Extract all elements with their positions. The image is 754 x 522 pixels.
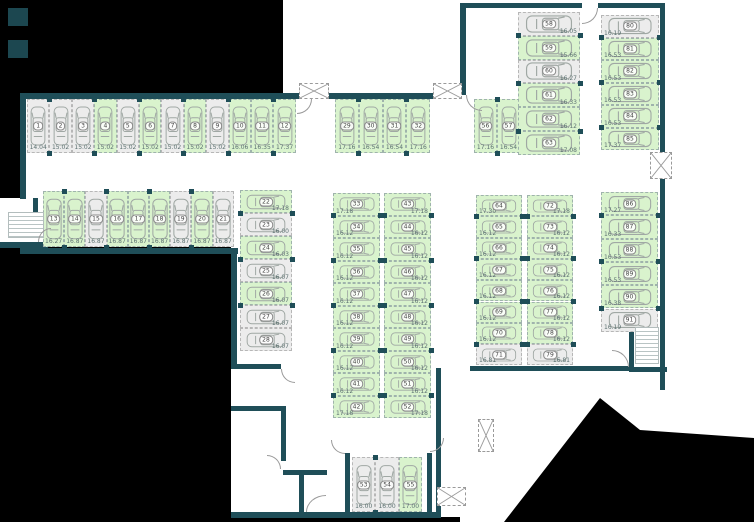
stall-78[interactable]: 7816.12	[527, 323, 573, 344]
stall-dimension-label: 16.19	[604, 324, 621, 331]
column-marker	[599, 80, 604, 85]
stall-25[interactable]: 2516.07	[240, 259, 292, 282]
column-marker	[495, 151, 500, 156]
stall-83[interactable]: 8316.53	[601, 83, 659, 106]
stall-number-badge: 6	[145, 122, 155, 131]
stall-number-badge: 83	[623, 89, 637, 98]
stall-dimension-label: 17.37	[274, 144, 294, 151]
stall-dimension-label: 16.12	[411, 253, 428, 260]
stall-dimension-label: 16.12	[336, 253, 353, 260]
column-marker	[137, 97, 142, 102]
wall	[231, 364, 281, 369]
stall-number-badge: 65	[492, 222, 506, 231]
stall-dimension-label: 17.08	[560, 147, 577, 154]
stall-number-badge: 69	[492, 308, 506, 317]
stall-dimension-label: 16.54	[498, 144, 519, 151]
column-marker	[474, 214, 479, 219]
column-marker	[331, 348, 336, 353]
stall-31[interactable]: 3116.54	[383, 99, 407, 153]
column-marker	[404, 97, 409, 102]
exterior-block	[8, 40, 28, 58]
col-stalls-33-42: 3317.183416.123516.123616.123716.123816.…	[333, 193, 380, 418]
stall-4[interactable]: 415.02	[94, 99, 116, 153]
stall-dimension-label: 16.19	[604, 30, 621, 37]
stall-number-badge: 19	[174, 215, 188, 224]
stall-2[interactable]: 215.02	[49, 99, 71, 153]
stall-number-badge: 48	[401, 312, 415, 321]
stall-24[interactable]: 2416.03	[240, 236, 292, 259]
stall-number-badge: 16	[110, 215, 124, 224]
stall-dimension-label: 17.16	[407, 144, 429, 151]
stall-number-badge: 74	[543, 244, 557, 253]
stall-58[interactable]: 5816.05	[518, 12, 580, 36]
stall-number-badge: 3	[78, 122, 88, 131]
stall-54[interactable]: 5416.00	[375, 457, 398, 512]
stall-dimension-label: 16.53	[604, 52, 621, 59]
stall-number-badge: 26	[259, 289, 273, 298]
stall-73[interactable]: 7316.12	[527, 216, 573, 237]
stall-number-badge: 7	[168, 122, 178, 131]
stall-dimension-label: 16.03	[272, 251, 289, 258]
stall-dimension-label: 16.12	[411, 320, 428, 327]
wall	[460, 3, 582, 8]
stall-dimension-label: 15.02	[185, 144, 205, 151]
stall-number-badge: 5	[123, 122, 133, 131]
wall	[629, 367, 667, 372]
stall-number-badge: 91	[623, 316, 637, 325]
stall-32[interactable]: 3217.16	[406, 99, 430, 153]
stall-dimension-label: 16.07	[272, 297, 289, 304]
stall-number-badge: 44	[401, 222, 415, 231]
stall-67[interactable]: 6716.12	[476, 259, 522, 280]
column-marker	[238, 211, 243, 216]
wall	[231, 406, 286, 411]
stall-number-badge: 86	[623, 199, 637, 208]
stall-number-badge: 63	[542, 138, 556, 147]
stall-number-badge: 40	[350, 357, 364, 366]
column-marker	[226, 97, 231, 102]
stall-dimension-label: 16.12	[411, 365, 428, 372]
stall-number-badge: 71	[492, 350, 506, 359]
stall-dimension-label: 16.53	[604, 97, 621, 104]
stall-number-badge: 17	[132, 215, 146, 224]
column-marker	[656, 259, 661, 264]
column-marker	[137, 151, 142, 156]
stall-dimension-label: 16.12	[336, 365, 353, 372]
stall-60[interactable]: 6016.27	[518, 60, 580, 84]
column-marker	[578, 33, 583, 38]
stall-number-badge: 29	[340, 122, 354, 131]
col-stalls-64-71: 6417.306516.126616.126716.126816.126916.…	[476, 195, 522, 365]
stall-45[interactable]: 4516.12	[384, 238, 431, 261]
stall-11[interactable]: 1116.35	[251, 99, 273, 153]
stall-dimension-label: 15.02	[162, 144, 182, 151]
stall-81[interactable]: 8116.53	[601, 38, 659, 61]
column-marker	[382, 258, 387, 263]
column-marker	[271, 97, 276, 102]
stall-10[interactable]: 1016.06	[229, 99, 251, 153]
wall	[598, 3, 665, 8]
stall-75[interactable]: 7516.12	[527, 259, 573, 280]
stall-15[interactable]: 1516.87	[85, 191, 106, 247]
stall-35[interactable]: 3516.12	[333, 238, 380, 261]
stall-number-badge: 60	[542, 67, 556, 76]
stall-dimension-label: 17.18	[336, 410, 353, 417]
stall-dimension-label: 16.27	[560, 75, 577, 82]
stall-number-badge: 55	[404, 480, 418, 489]
stall-number-badge: 88	[623, 246, 637, 255]
column-marker	[331, 258, 336, 263]
column-marker	[271, 151, 276, 156]
stall-number-badge: 76	[543, 286, 557, 295]
stall-number-badge: 52	[401, 402, 415, 411]
stall-number-badge: 43	[401, 200, 415, 209]
stall-dimension-label: 15.02	[140, 144, 160, 151]
stall-79[interactable]: 7916.81	[527, 344, 573, 365]
column-marker	[238, 257, 243, 262]
stall-55[interactable]: 5517.00	[399, 457, 422, 512]
column-marker	[238, 303, 243, 308]
stall-number-badge: 85	[623, 134, 637, 143]
column-marker	[495, 97, 500, 102]
column-marker	[290, 257, 295, 262]
stall-dimension-label: 17.18	[336, 208, 353, 215]
stall-number-badge: 20	[195, 215, 209, 224]
stall-72[interactable]: 7217.18	[527, 195, 573, 216]
stall-dimension-label: 16.87	[171, 238, 190, 245]
stall-number-badge: 31	[388, 122, 402, 131]
stall-dimension-label: 16.07	[272, 274, 289, 281]
stall-59[interactable]: 5915.66	[518, 36, 580, 60]
stall-dimension-label: 16.07	[272, 343, 289, 350]
stall-dimension-label: 17.18	[272, 205, 289, 212]
stall-28[interactable]: 2816.07	[240, 328, 292, 351]
stall-number-badge: 8	[190, 122, 200, 131]
stall-33[interactable]: 3317.18	[333, 193, 380, 216]
stall-dimension-label: 16.33	[560, 99, 577, 106]
stall-number-badge: 27	[259, 312, 273, 321]
column-marker	[373, 510, 378, 515]
column-marker	[599, 125, 604, 130]
stall-74[interactable]: 7416.12	[527, 238, 573, 259]
stall-71[interactable]: 7116.81	[476, 344, 522, 365]
stall-86[interactable]: 8617.27	[601, 192, 658, 215]
stall-number-badge: 45	[401, 245, 415, 254]
stall-dimension-label: 16.12	[336, 343, 353, 350]
stall-7[interactable]: 715.02	[161, 99, 183, 153]
stall-20[interactable]: 2016.87	[191, 191, 212, 247]
column-marker	[599, 259, 604, 264]
stall-dimension-label: 16.12	[411, 343, 428, 350]
stall-dimension-label: 16.12	[411, 298, 428, 305]
column-marker	[525, 299, 530, 304]
stall-dimension-label: 16.87	[192, 238, 211, 245]
stall-dimension-label: 16.07	[272, 320, 289, 327]
stall-number-badge: 84	[623, 112, 637, 121]
stall-48[interactable]: 4816.12	[384, 306, 431, 329]
stall-42[interactable]: 4217.18	[333, 396, 380, 419]
stall-dimension-label: 16.00	[353, 503, 374, 510]
column-marker	[331, 303, 336, 308]
stall-number-badge: 46	[401, 267, 415, 276]
stall-77[interactable]: 7716.12	[527, 302, 573, 323]
stall-14[interactable]: 1416.87	[64, 191, 85, 247]
stall-66[interactable]: 6616.12	[476, 238, 522, 259]
wall	[20, 248, 238, 254]
column-marker	[382, 303, 387, 308]
stall-89[interactable]: 8916.53	[601, 262, 658, 285]
column-marker	[525, 214, 530, 219]
stall-16[interactable]: 1616.87	[107, 191, 128, 247]
stall-21[interactable]: 2116.87	[213, 191, 234, 247]
column-marker	[525, 342, 530, 347]
stall-dimension-label: 16.87	[214, 238, 233, 245]
stall-dimension-label: 16.54	[360, 144, 382, 151]
stall-8[interactable]: 815.02	[184, 99, 206, 153]
stall-dimension-label: 16.06	[230, 144, 250, 151]
stall-dimension-label: 16.33	[604, 231, 621, 238]
stall-number-badge: 12	[278, 122, 292, 131]
stall-19[interactable]: 1916.87	[170, 191, 191, 247]
column-marker	[578, 81, 583, 86]
column-marker	[404, 151, 409, 156]
stall-38[interactable]: 3816.12	[333, 306, 380, 329]
stall-47[interactable]: 4716.12	[384, 283, 431, 306]
column-marker	[516, 33, 521, 38]
stall-dimension-label: 16.87	[86, 238, 105, 245]
stall-40[interactable]: 4016.12	[333, 351, 380, 374]
stall-41[interactable]: 4116.12	[333, 373, 380, 396]
col-stalls-72-79: 7217.187316.127416.127516.127616.127716.…	[527, 195, 573, 365]
stall-number-badge: 90	[623, 292, 637, 301]
column-marker	[657, 80, 662, 85]
shaft-x-symbol	[299, 83, 329, 99]
shaft-x-symbol	[437, 487, 466, 506]
stall-number-badge: 62	[542, 115, 556, 124]
stall-88[interactable]: 8816.53	[601, 239, 658, 262]
stall-number-badge: 23	[259, 220, 273, 229]
column-marker	[104, 189, 109, 194]
column-marker	[382, 393, 387, 398]
wall	[231, 248, 237, 368]
stall-number-badge: 58	[542, 19, 556, 28]
column-marker	[429, 213, 434, 218]
stall-52[interactable]: 5217.18	[384, 396, 431, 419]
stall-6[interactable]: 615.02	[139, 99, 161, 153]
stall-18[interactable]: 1816.87	[149, 191, 170, 247]
column-marker	[373, 455, 378, 460]
stall-61[interactable]: 6116.33	[518, 83, 580, 107]
stall-number-badge: 37	[350, 290, 364, 299]
stall-62[interactable]: 6216.12	[518, 107, 580, 131]
stall-number-badge: 53	[357, 480, 371, 489]
stall-dimension-label: 16.12	[411, 388, 428, 395]
stall-dimension-label: 14.04	[28, 144, 48, 151]
column-marker	[226, 151, 231, 156]
wall	[427, 453, 432, 515]
stall-dimension-label: 16.87	[65, 238, 84, 245]
row-stalls-29-32: 2917.163016.543116.543217.16	[335, 99, 430, 153]
stall-number-badge: 78	[543, 329, 557, 338]
stall-37[interactable]: 3716.12	[333, 283, 380, 306]
stall-number-badge: 39	[350, 335, 364, 344]
stall-number-badge: 32	[411, 122, 425, 131]
stall-64[interactable]: 6417.30	[476, 195, 522, 216]
column-marker	[474, 256, 479, 261]
column-marker	[356, 97, 361, 102]
stall-63[interactable]: 6317.08	[518, 131, 580, 155]
stall-number-badge: 14	[68, 215, 82, 224]
column-marker	[147, 189, 152, 194]
column-marker	[578, 129, 583, 134]
shaft-x-symbol	[433, 83, 462, 99]
column-marker	[516, 81, 521, 86]
stall-22[interactable]: 2217.18	[240, 190, 292, 213]
stall-dimension-label: 17.16	[475, 144, 496, 151]
stall-39[interactable]: 3916.12	[333, 328, 380, 351]
stall-3[interactable]: 315.02	[72, 99, 94, 153]
stall-9[interactable]: 915.02	[206, 99, 228, 153]
stall-dimension-label: 15.02	[50, 144, 70, 151]
stall-5[interactable]: 515.02	[117, 99, 139, 153]
stall-65[interactable]: 6516.12	[476, 216, 522, 237]
stall-dimension-label: 17.00	[400, 503, 421, 510]
stall-number-badge: 18	[153, 215, 167, 224]
stairs-icon	[8, 212, 44, 238]
stall-dimension-label: 16.87	[108, 238, 127, 245]
stall-80[interactable]: 8016.19	[601, 15, 659, 38]
wall	[660, 3, 665, 390]
stall-dimension-label: 15.02	[73, 144, 93, 151]
stall-dimension-label: 15.02	[118, 144, 138, 151]
column-marker	[382, 213, 387, 218]
stall-34[interactable]: 3416.12	[333, 216, 380, 239]
stall-number-badge: 41	[350, 380, 364, 389]
col-stalls-43-52: 4317.184416.124516.124616.124716.124816.…	[384, 193, 431, 418]
stall-69[interactable]: 6916.12	[476, 302, 522, 323]
stall-dimension-label: 17.18	[411, 410, 428, 417]
stall-90[interactable]: 9016.38	[601, 285, 658, 308]
stall-84[interactable]: 8416.53	[601, 105, 659, 128]
stall-87[interactable]: 8716.33	[601, 215, 658, 238]
column-marker	[47, 151, 52, 156]
column-marker	[571, 256, 576, 261]
stall-30[interactable]: 3016.54	[359, 99, 383, 153]
exterior-mask	[0, 0, 283, 94]
stall-23[interactable]: 2316.00	[240, 213, 292, 236]
column-marker	[331, 393, 336, 398]
stall-number-badge: 28	[259, 335, 273, 344]
stall-dimension-label: 16.00	[272, 228, 289, 235]
column-marker	[104, 245, 109, 250]
stall-number-badge: 79	[543, 350, 557, 359]
col-stalls-80-85: 8016.198116.538216.538316.538416.538517.…	[601, 15, 659, 150]
col-stalls-86-91: 8617.278716.338816.538916.539016.389116.…	[601, 192, 658, 332]
column-marker	[429, 303, 434, 308]
stall-82[interactable]: 8216.53	[601, 60, 659, 83]
stall-17[interactable]: 1716.87	[128, 191, 149, 247]
column-marker	[599, 306, 604, 311]
column-marker	[599, 35, 604, 40]
stall-76[interactable]: 7616.12	[527, 280, 573, 301]
stall-70[interactable]: 7016.12	[476, 323, 522, 344]
column-marker	[571, 214, 576, 219]
stall-36[interactable]: 3616.12	[333, 261, 380, 284]
stall-51[interactable]: 5116.12	[384, 373, 431, 396]
stall-dimension-label: 17.37	[604, 142, 621, 149]
stall-dimension-label: 17.27	[604, 207, 621, 214]
stall-number-badge: 61	[542, 91, 556, 100]
stall-number-badge: 42	[350, 402, 364, 411]
column-marker	[657, 35, 662, 40]
stall-46[interactable]: 4616.12	[384, 261, 431, 284]
column-marker	[356, 151, 361, 156]
shaft-x-symbol	[478, 419, 494, 452]
shaft-x-symbol	[650, 152, 672, 179]
stall-dimension-label: 16.53	[604, 75, 621, 82]
stall-12[interactable]: 1217.37	[273, 99, 295, 153]
stall-43[interactable]: 4317.18	[384, 193, 431, 216]
stall-dimension-label: 16.00	[376, 503, 397, 510]
column-marker	[429, 393, 434, 398]
exterior-mask	[0, 246, 231, 522]
column-marker	[189, 245, 194, 250]
stall-number-badge: 24	[259, 243, 273, 252]
stall-number-badge: 15	[89, 215, 103, 224]
column-marker	[525, 256, 530, 261]
column-marker	[62, 189, 67, 194]
stall-27[interactable]: 2716.07	[240, 305, 292, 328]
stall-29[interactable]: 2917.16	[335, 99, 359, 153]
column-marker	[181, 151, 186, 156]
stall-dimension-label: 16.05	[560, 28, 577, 35]
col-stalls-22-28: 2217.182316.002416.032516.072616.072716.…	[240, 190, 292, 351]
stall-dimension-label: 16.12	[336, 320, 353, 327]
column-marker	[181, 97, 186, 102]
column-marker	[189, 189, 194, 194]
column-marker	[474, 299, 479, 304]
stall-57[interactable]: 5716.54	[497, 99, 520, 153]
wall	[460, 3, 466, 95]
stall-number-badge: 36	[350, 267, 364, 276]
stall-49[interactable]: 4916.12	[384, 328, 431, 351]
column-marker	[147, 245, 152, 250]
stall-number-badge: 49	[401, 335, 415, 344]
exterior-mask	[0, 94, 20, 198]
column-marker	[290, 211, 295, 216]
col-stalls-58-63: 5816.055915.666016.276116.336216.126317.…	[518, 12, 580, 155]
stall-number-badge: 4	[100, 122, 110, 131]
stall-53[interactable]: 5316.00	[352, 457, 375, 512]
stall-number-badge: 30	[364, 122, 378, 131]
stall-68[interactable]: 6816.12	[476, 280, 522, 301]
stall-26[interactable]: 2616.07	[240, 282, 292, 305]
stall-85[interactable]: 8517.37	[601, 128, 659, 151]
stall-dimension-label: 16.12	[336, 388, 353, 395]
stall-1[interactable]: 114.04	[27, 99, 49, 153]
stall-44[interactable]: 4416.12	[384, 216, 431, 239]
stall-dimension-label: 16.12	[411, 275, 428, 282]
stall-50[interactable]: 5016.12	[384, 351, 431, 374]
floor-plan: 114.04215.02315.02415.02515.02615.02715.…	[0, 0, 754, 522]
stall-dimension-label: 17.16	[336, 144, 358, 151]
column-marker	[657, 125, 662, 130]
stall-number-badge: 34	[350, 222, 364, 231]
wall	[231, 512, 441, 518]
column-marker	[656, 213, 661, 218]
wall	[20, 93, 26, 199]
stall-number-badge: 59	[542, 43, 556, 52]
